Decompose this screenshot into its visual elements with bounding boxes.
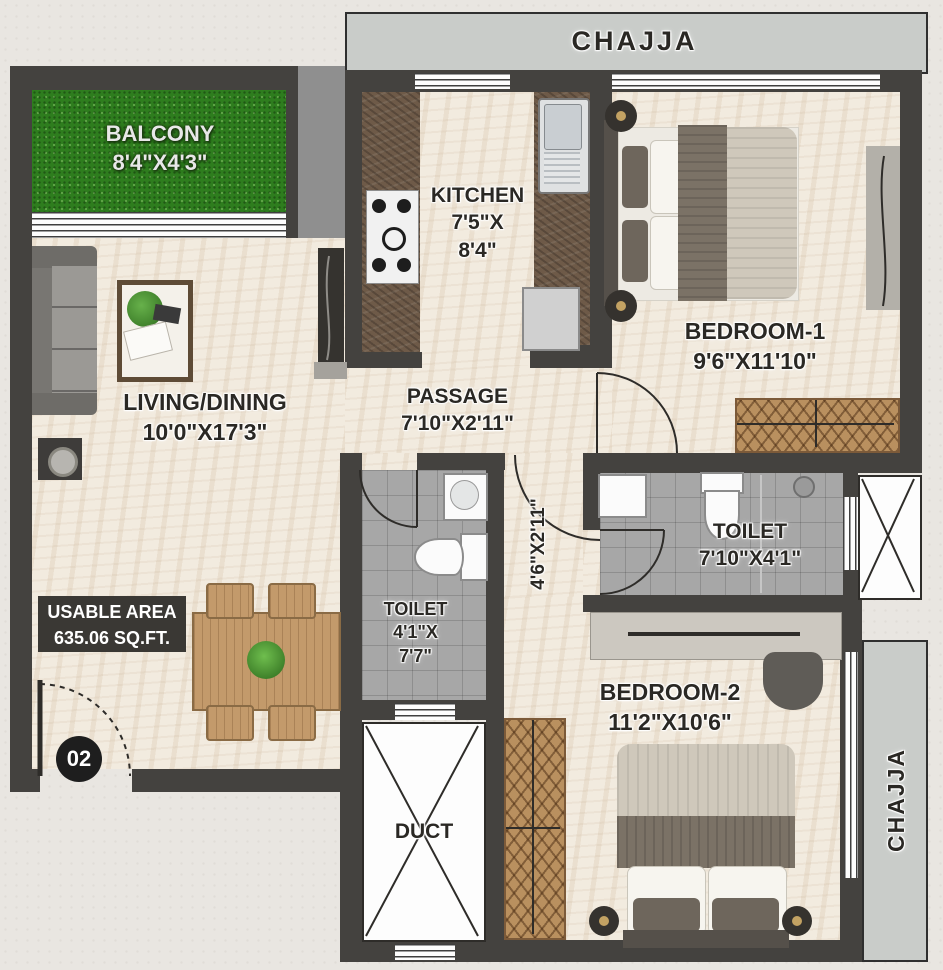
wall-living-kitchen	[345, 70, 362, 368]
wall-toilet2-right-b	[843, 570, 858, 600]
bedroom2-right-window	[844, 652, 858, 878]
bed1-blanket-light	[727, 127, 797, 299]
duct-vent-top	[395, 703, 455, 720]
toilet2-sink	[598, 474, 647, 518]
toilet2-dims: 7'10"X4'1"	[645, 545, 855, 572]
bed1-pillow-dark	[622, 146, 648, 208]
sofa-back	[32, 266, 52, 395]
dining-chair	[268, 583, 316, 619]
bed1-headboard	[604, 120, 618, 306]
toilet1-name: TOILET	[358, 598, 473, 621]
chajja-right-label: CHAJJA	[882, 725, 908, 875]
wall-left	[10, 66, 32, 792]
dining-table-plant	[247, 641, 285, 679]
sofa-seat	[52, 266, 97, 393]
wall-toilet2-right-a	[843, 472, 858, 497]
wall-toilet1-right	[486, 453, 504, 715]
toilet1-sink-basin	[450, 480, 479, 510]
bed1-pillow-dark	[622, 220, 648, 282]
bed1-blanket-dark	[678, 125, 727, 301]
toilet2-name: TOILET	[645, 518, 855, 545]
bedroom1-label: BEDROOM-1 9'6"X11'10"	[635, 317, 875, 377]
wall-bedroom1-right	[900, 70, 922, 460]
wall-toilet2-bottom	[583, 595, 862, 612]
passage-label: PASSAGE 7'10"X2'11"	[360, 383, 555, 438]
bedroom2-name: BEDROOM-2	[550, 678, 790, 708]
passage-name: PASSAGE	[360, 383, 555, 410]
usable-area-line1: USABLE AREA	[38, 599, 186, 625]
kitchen-name: KITCHEN	[390, 182, 565, 209]
kitchen-counter-stub-left	[362, 352, 422, 368]
balcony-niche	[298, 66, 345, 238]
balcony-label: BALCONY 8'4"X4'3"	[40, 120, 280, 177]
toilet1-dims-2: 7'7"	[358, 645, 473, 668]
toilet1-wc-tank	[460, 533, 488, 581]
fridge	[522, 287, 580, 351]
balcony-window	[32, 212, 286, 238]
dining-chair	[268, 705, 316, 741]
toilet2-label: TOILET 7'10"X4'1"	[645, 518, 855, 573]
bedroom1-window-curtain	[866, 146, 900, 310]
kitchen-top-window	[415, 73, 510, 89]
sofa-armrest-top	[32, 246, 97, 268]
kitchen-dims-1: 7'5"X	[390, 209, 565, 236]
wall-living-bottom-left	[10, 769, 40, 792]
chajja-top-label: CHAJJA	[345, 12, 924, 70]
bedroom1-top-window	[602, 73, 880, 89]
duct-label: DUCT	[365, 818, 483, 845]
bedroom2-wardrobe	[504, 718, 566, 940]
stove-burner	[372, 258, 386, 272]
kitchen-sink-drainboard	[544, 152, 580, 184]
living-label: LIVING/DINING 10'0"X17'3"	[80, 388, 330, 448]
bed2-lamp-bulb	[792, 916, 802, 926]
passage-dims: 7'10"X2'11"	[360, 410, 555, 437]
side-table-lamp	[48, 447, 78, 477]
bedroom1-dims: 9'6"X11'10"	[635, 347, 875, 377]
bed2-pillow-dark	[633, 898, 700, 932]
bed2-blanket-dark	[617, 816, 795, 868]
bedroom2-label: BEDROOM-2 11'2"X10'6"	[550, 678, 790, 738]
toilet1-label: TOILET 4'1"X 7'7"	[358, 598, 473, 668]
bed2-pillow-dark	[712, 898, 779, 932]
living-dims: 10'0"X17'3"	[80, 418, 330, 448]
inner-passage-dim-label: 4'6"X2'11"	[527, 469, 553, 619]
bed1-lamp-bulb	[616, 111, 626, 121]
bed2-lamp-bulb	[599, 916, 609, 926]
kitchen-sink-basin	[544, 104, 582, 150]
toilet1-wc-bowl	[414, 538, 464, 576]
floor-plan: CHAJJA BALCONY 8'4"X4'3" KITCHEN 7'5"X 8…	[0, 0, 943, 970]
bed2-headboard	[623, 930, 789, 948]
toilet2-shower	[793, 476, 815, 498]
dining-chair	[206, 705, 254, 741]
duct2-shaft	[858, 475, 922, 600]
wall-duct-right	[486, 700, 504, 962]
wall-balcony-top	[10, 66, 292, 90]
bed1-lamp-bulb	[616, 301, 626, 311]
living-name: LIVING/DINING	[80, 388, 330, 418]
tv-shelf	[314, 362, 347, 379]
usable-area-box: USABLE AREA 635.06 SQ.FT.	[38, 596, 186, 652]
bedroom1-wardrobe	[735, 398, 900, 453]
dining-chair	[206, 583, 254, 619]
duct-vent-bottom	[395, 944, 455, 960]
balcony-dims: 8'4"X4'3"	[40, 149, 280, 178]
toilet1-dims-1: 4'1"X	[358, 621, 473, 644]
unit-number-badge: 02	[56, 736, 102, 782]
stove-burner	[372, 199, 386, 213]
toilet1-door-gap	[362, 453, 417, 470]
tv-unit	[318, 248, 344, 365]
toilet2-door-gap	[583, 530, 600, 597]
kitchen-dims-2: 8'4"	[390, 237, 565, 264]
wall-balcony-divider	[286, 66, 298, 238]
bed2-blanket-light	[617, 744, 795, 820]
wall-bedroom1-bottom	[583, 453, 922, 473]
usable-area-line2: 635.06 SQ.FT.	[38, 625, 186, 651]
balcony-name: BALCONY	[40, 120, 280, 149]
wall-living-bottom-right	[132, 769, 362, 792]
bedroom2-dims: 11'2"X10'6"	[550, 708, 790, 738]
bedroom1-name: BEDROOM-1	[635, 317, 875, 347]
kitchen-label: KITCHEN 7'5"X 8'4"	[390, 182, 565, 264]
